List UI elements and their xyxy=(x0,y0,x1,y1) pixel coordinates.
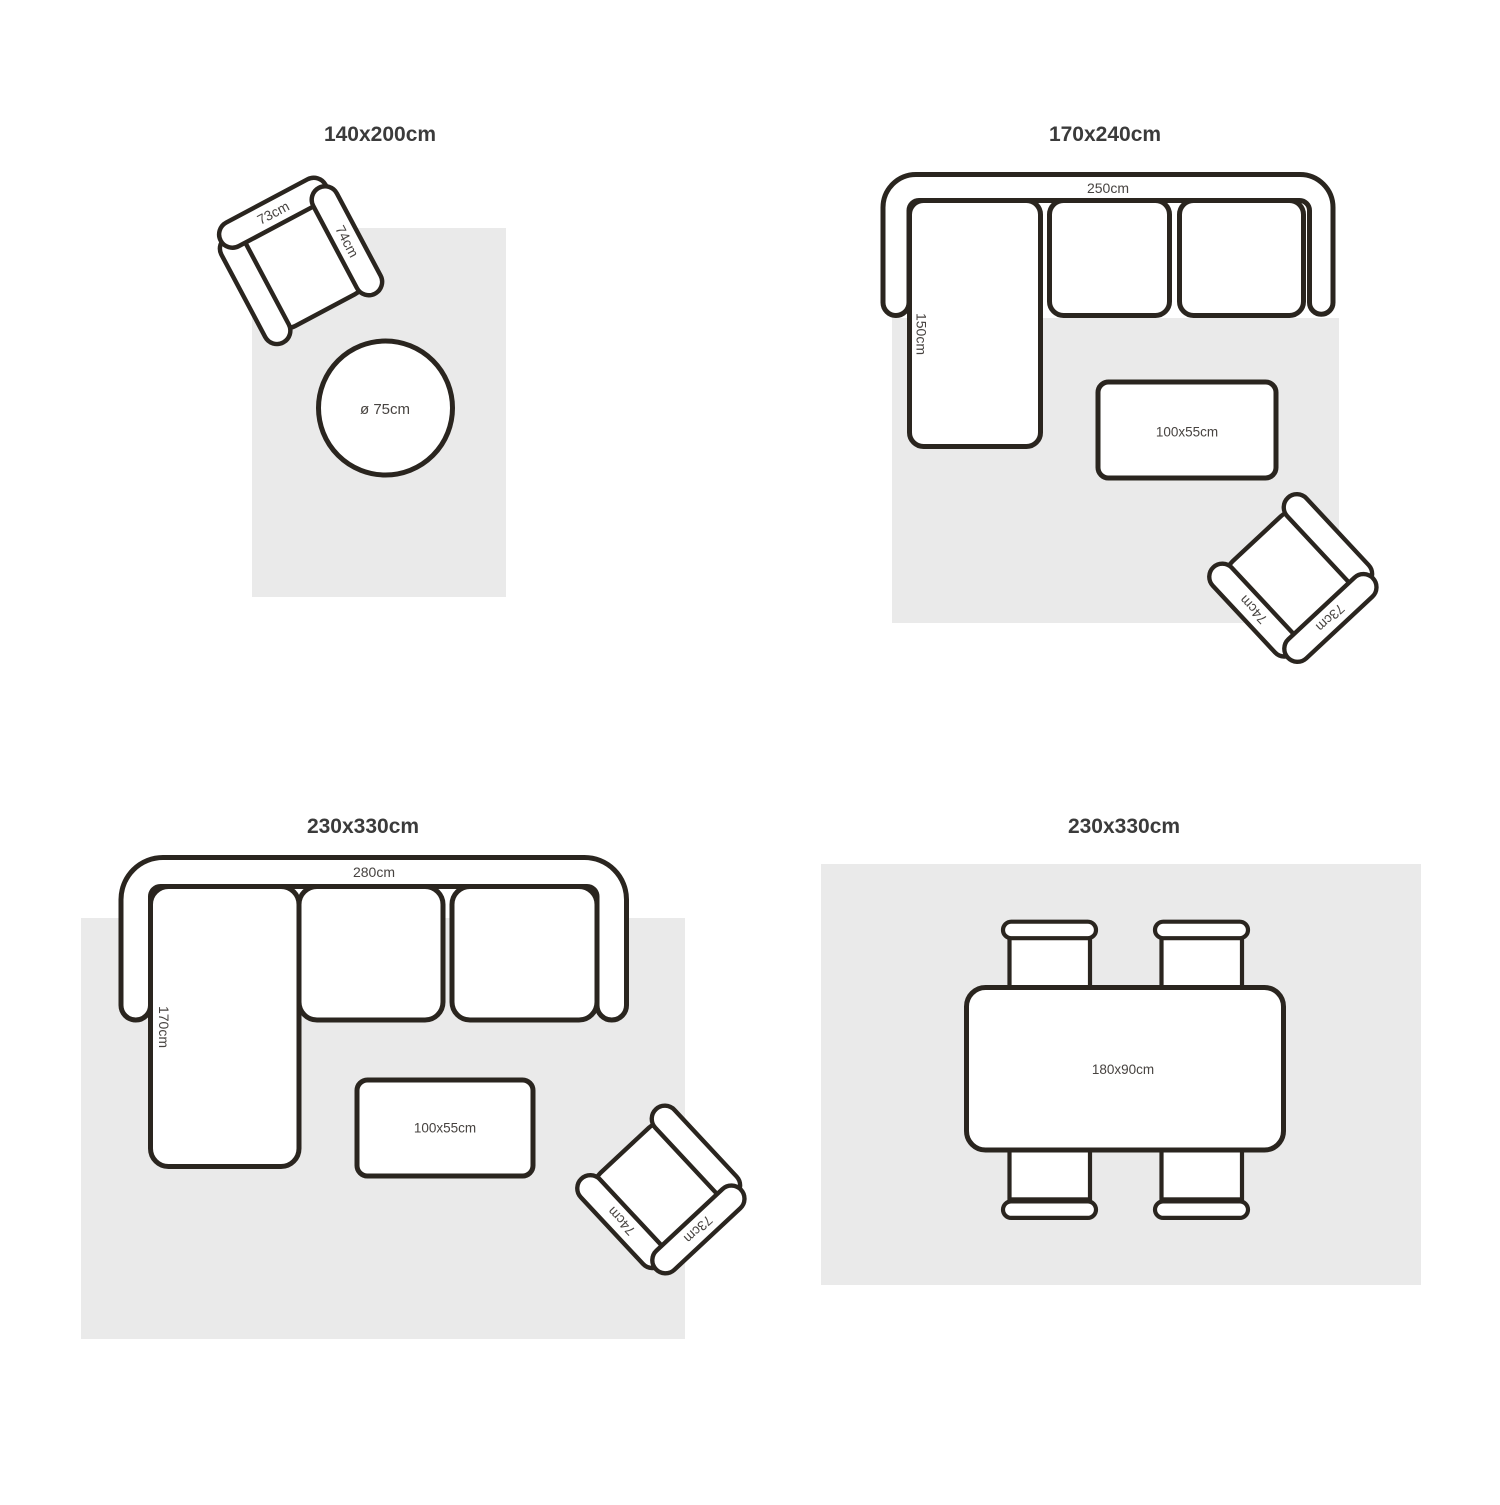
svg-text:100x55cm: 100x55cm xyxy=(1156,425,1218,440)
svg-text:100x55cm: 100x55cm xyxy=(414,1121,476,1136)
svg-text:230x330cm: 230x330cm xyxy=(1068,815,1180,838)
svg-text:250cm: 250cm xyxy=(1087,180,1129,196)
svg-text:170x240cm: 170x240cm xyxy=(1049,123,1161,146)
svg-text:180x90cm: 180x90cm xyxy=(1092,1062,1154,1077)
svg-text:230x330cm: 230x330cm xyxy=(307,815,419,838)
svg-text:170cm: 170cm xyxy=(156,1006,172,1048)
svg-text:ø 75cm: ø 75cm xyxy=(360,401,410,418)
svg-text:280cm: 280cm xyxy=(353,864,395,880)
svg-text:150cm: 150cm xyxy=(914,313,930,355)
svg-text:140x200cm: 140x200cm xyxy=(324,123,436,146)
